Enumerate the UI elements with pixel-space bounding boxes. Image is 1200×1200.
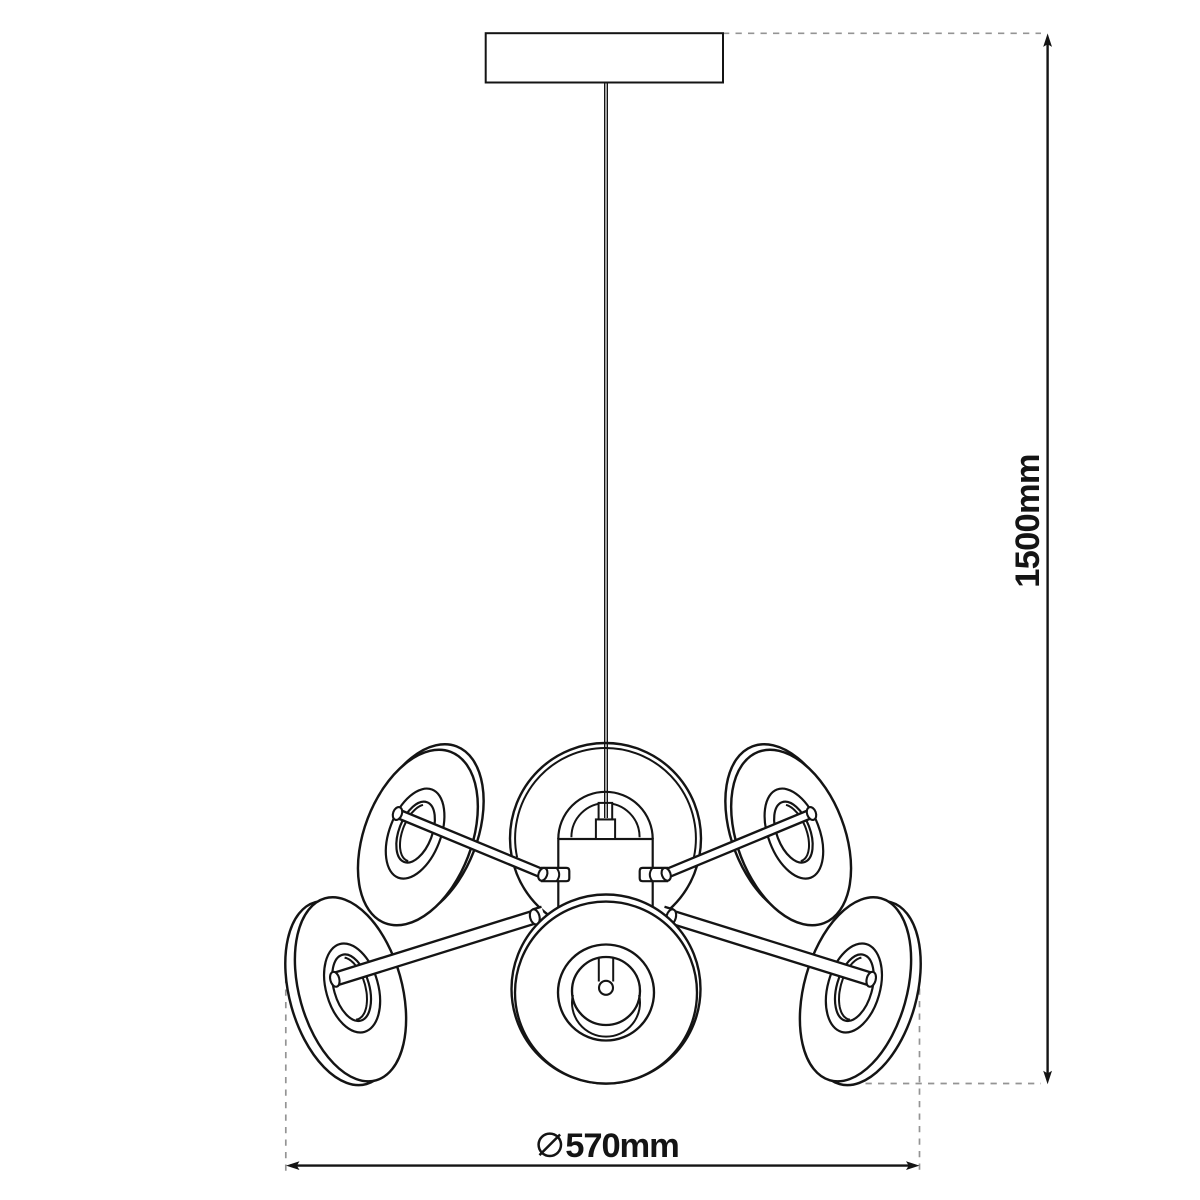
svg-text:1500mm: 1500mm (1009, 454, 1047, 588)
svg-text:570mm: 570mm (565, 1127, 678, 1165)
